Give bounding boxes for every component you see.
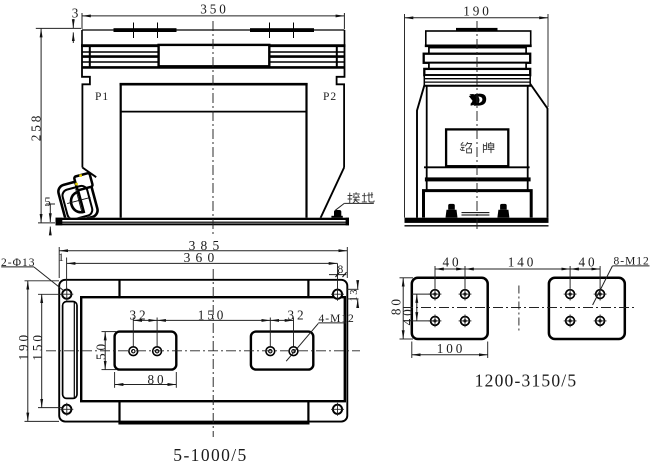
svg-text:150: 150 — [30, 332, 45, 360]
svg-text:100: 100 — [437, 341, 465, 356]
svg-text:190: 190 — [16, 332, 31, 360]
svg-text:5-1000/5: 5-1000/5 — [173, 445, 247, 465]
svg-text:360: 360 — [184, 250, 220, 265]
svg-text:140: 140 — [508, 254, 536, 269]
svg-text:3: 3 — [72, 5, 82, 20]
svg-text:5: 5 — [44, 195, 53, 209]
svg-text:40: 40 — [400, 306, 415, 325]
svg-text:8: 8 — [337, 264, 346, 276]
svg-text:4-M12: 4-M12 — [319, 313, 355, 325]
svg-text:13: 13 — [349, 288, 360, 302]
svg-text:190: 190 — [463, 4, 491, 19]
svg-text:32: 32 — [288, 308, 307, 323]
svg-text:350: 350 — [200, 2, 228, 17]
svg-text:32: 32 — [130, 308, 149, 323]
svg-text:1200-3150/5: 1200-3150/5 — [475, 371, 578, 391]
svg-text:80: 80 — [148, 372, 167, 387]
svg-text:40: 40 — [579, 254, 598, 269]
svg-text:P2: P2 — [323, 91, 337, 103]
svg-text:40: 40 — [443, 254, 462, 269]
svg-text:P1: P1 — [95, 91, 109, 103]
svg-text:258: 258 — [29, 113, 44, 141]
svg-text:8-M12: 8-M12 — [614, 255, 650, 267]
svg-text:50: 50 — [93, 341, 108, 360]
svg-text:1: 1 — [58, 252, 67, 264]
svg-text:150: 150 — [198, 308, 226, 323]
svg-text:2-Φ13: 2-Φ13 — [1, 257, 36, 269]
